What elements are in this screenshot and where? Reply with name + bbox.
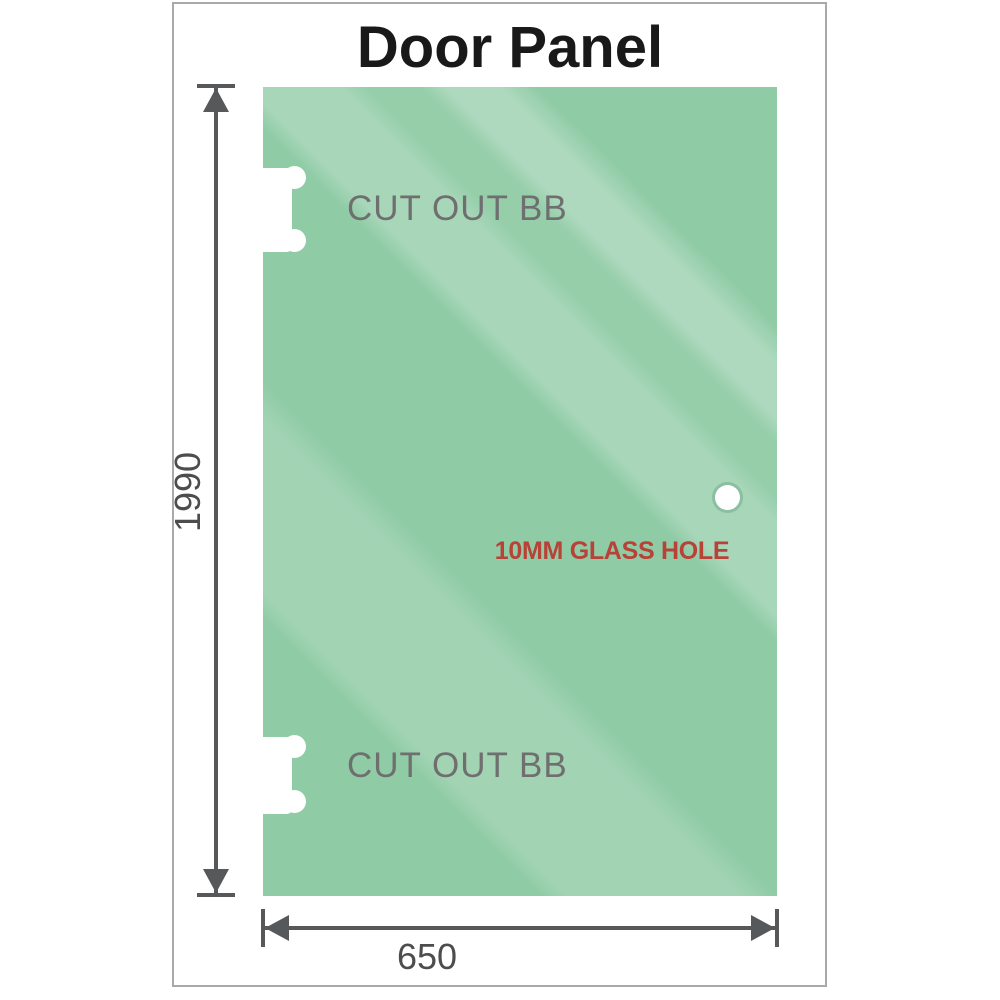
cutout-bottom-upper-lobe xyxy=(283,735,306,758)
height-dimension-label: 1990 xyxy=(168,432,208,552)
dimension-arrow-down-icon xyxy=(203,869,229,893)
glass-hole-label: 10MM GLASS HOLE xyxy=(495,537,729,566)
height-dim-shaft xyxy=(214,88,218,894)
dimension-arrow-up-icon xyxy=(203,88,229,112)
cutout-top-upper-lobe xyxy=(283,166,306,189)
cutout-top-lower-lobe xyxy=(283,229,306,252)
cutout-bottom-lower-lobe xyxy=(283,790,306,813)
width-dim-shaft xyxy=(263,926,777,930)
glass-hole xyxy=(715,485,740,510)
width-dimension-label: 650 xyxy=(397,936,457,978)
dimension-arrow-left-icon xyxy=(265,915,289,941)
page-title: Door Panel xyxy=(357,14,663,81)
cutout-bottom-label: CUT OUT BB xyxy=(347,746,568,786)
cutout-top-label: CUT OUT BB xyxy=(347,189,568,229)
door-panel-drawing: Door Panel CUT OUT BB CUT OUT BB 10MM GL… xyxy=(0,0,1000,1000)
dimension-arrow-right-icon xyxy=(751,915,775,941)
